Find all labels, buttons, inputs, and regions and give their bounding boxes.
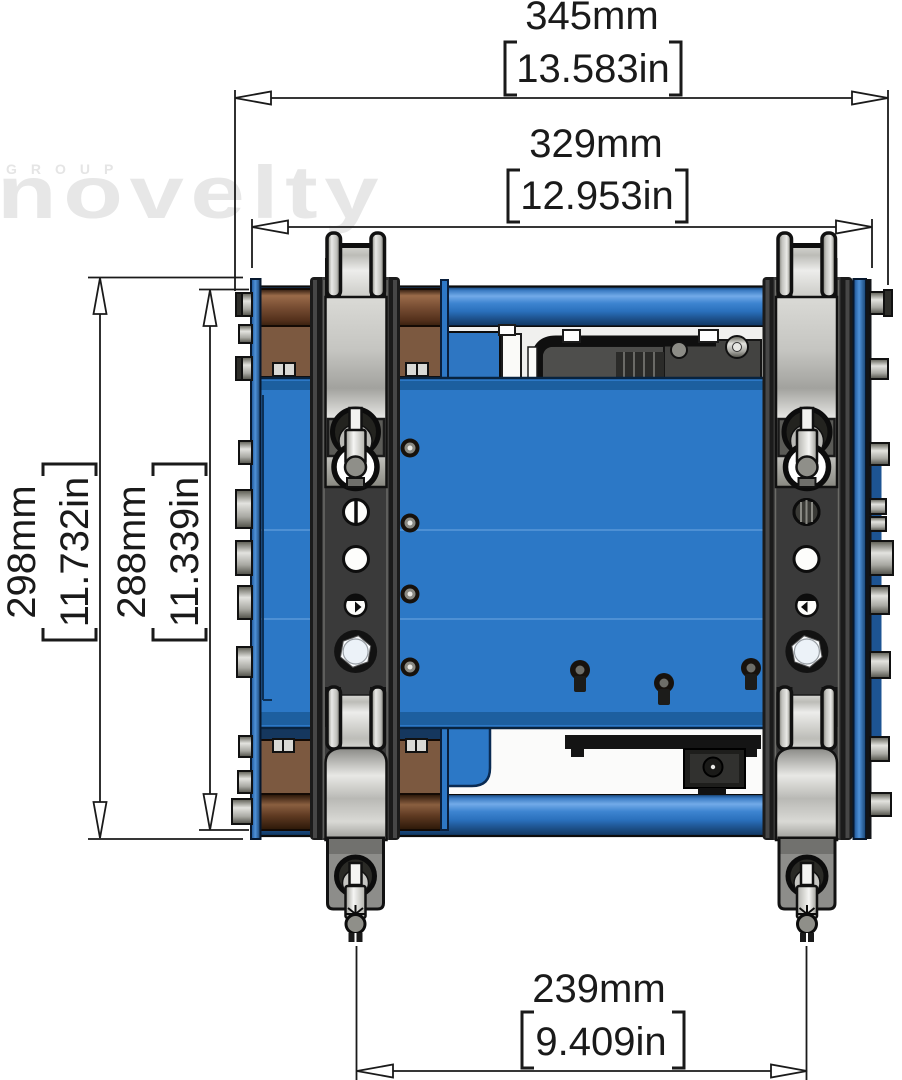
svg-text:9.409in: 9.409in [535, 1020, 666, 1064]
svg-text:11.732in: 11.732in [53, 477, 97, 628]
svg-text:239mm: 239mm [532, 967, 665, 1011]
svg-text:11.339in: 11.339in [163, 477, 207, 628]
svg-text:329mm: 329mm [529, 122, 662, 166]
svg-text:12.953in: 12.953in [520, 174, 673, 218]
svg-text:novelty: novelty [0, 152, 385, 234]
svg-text:288mm: 288mm [110, 485, 154, 618]
svg-text:345mm: 345mm [525, 0, 658, 38]
svg-text:298mm: 298mm [0, 485, 44, 618]
svg-text:13.583in: 13.583in [516, 47, 669, 91]
